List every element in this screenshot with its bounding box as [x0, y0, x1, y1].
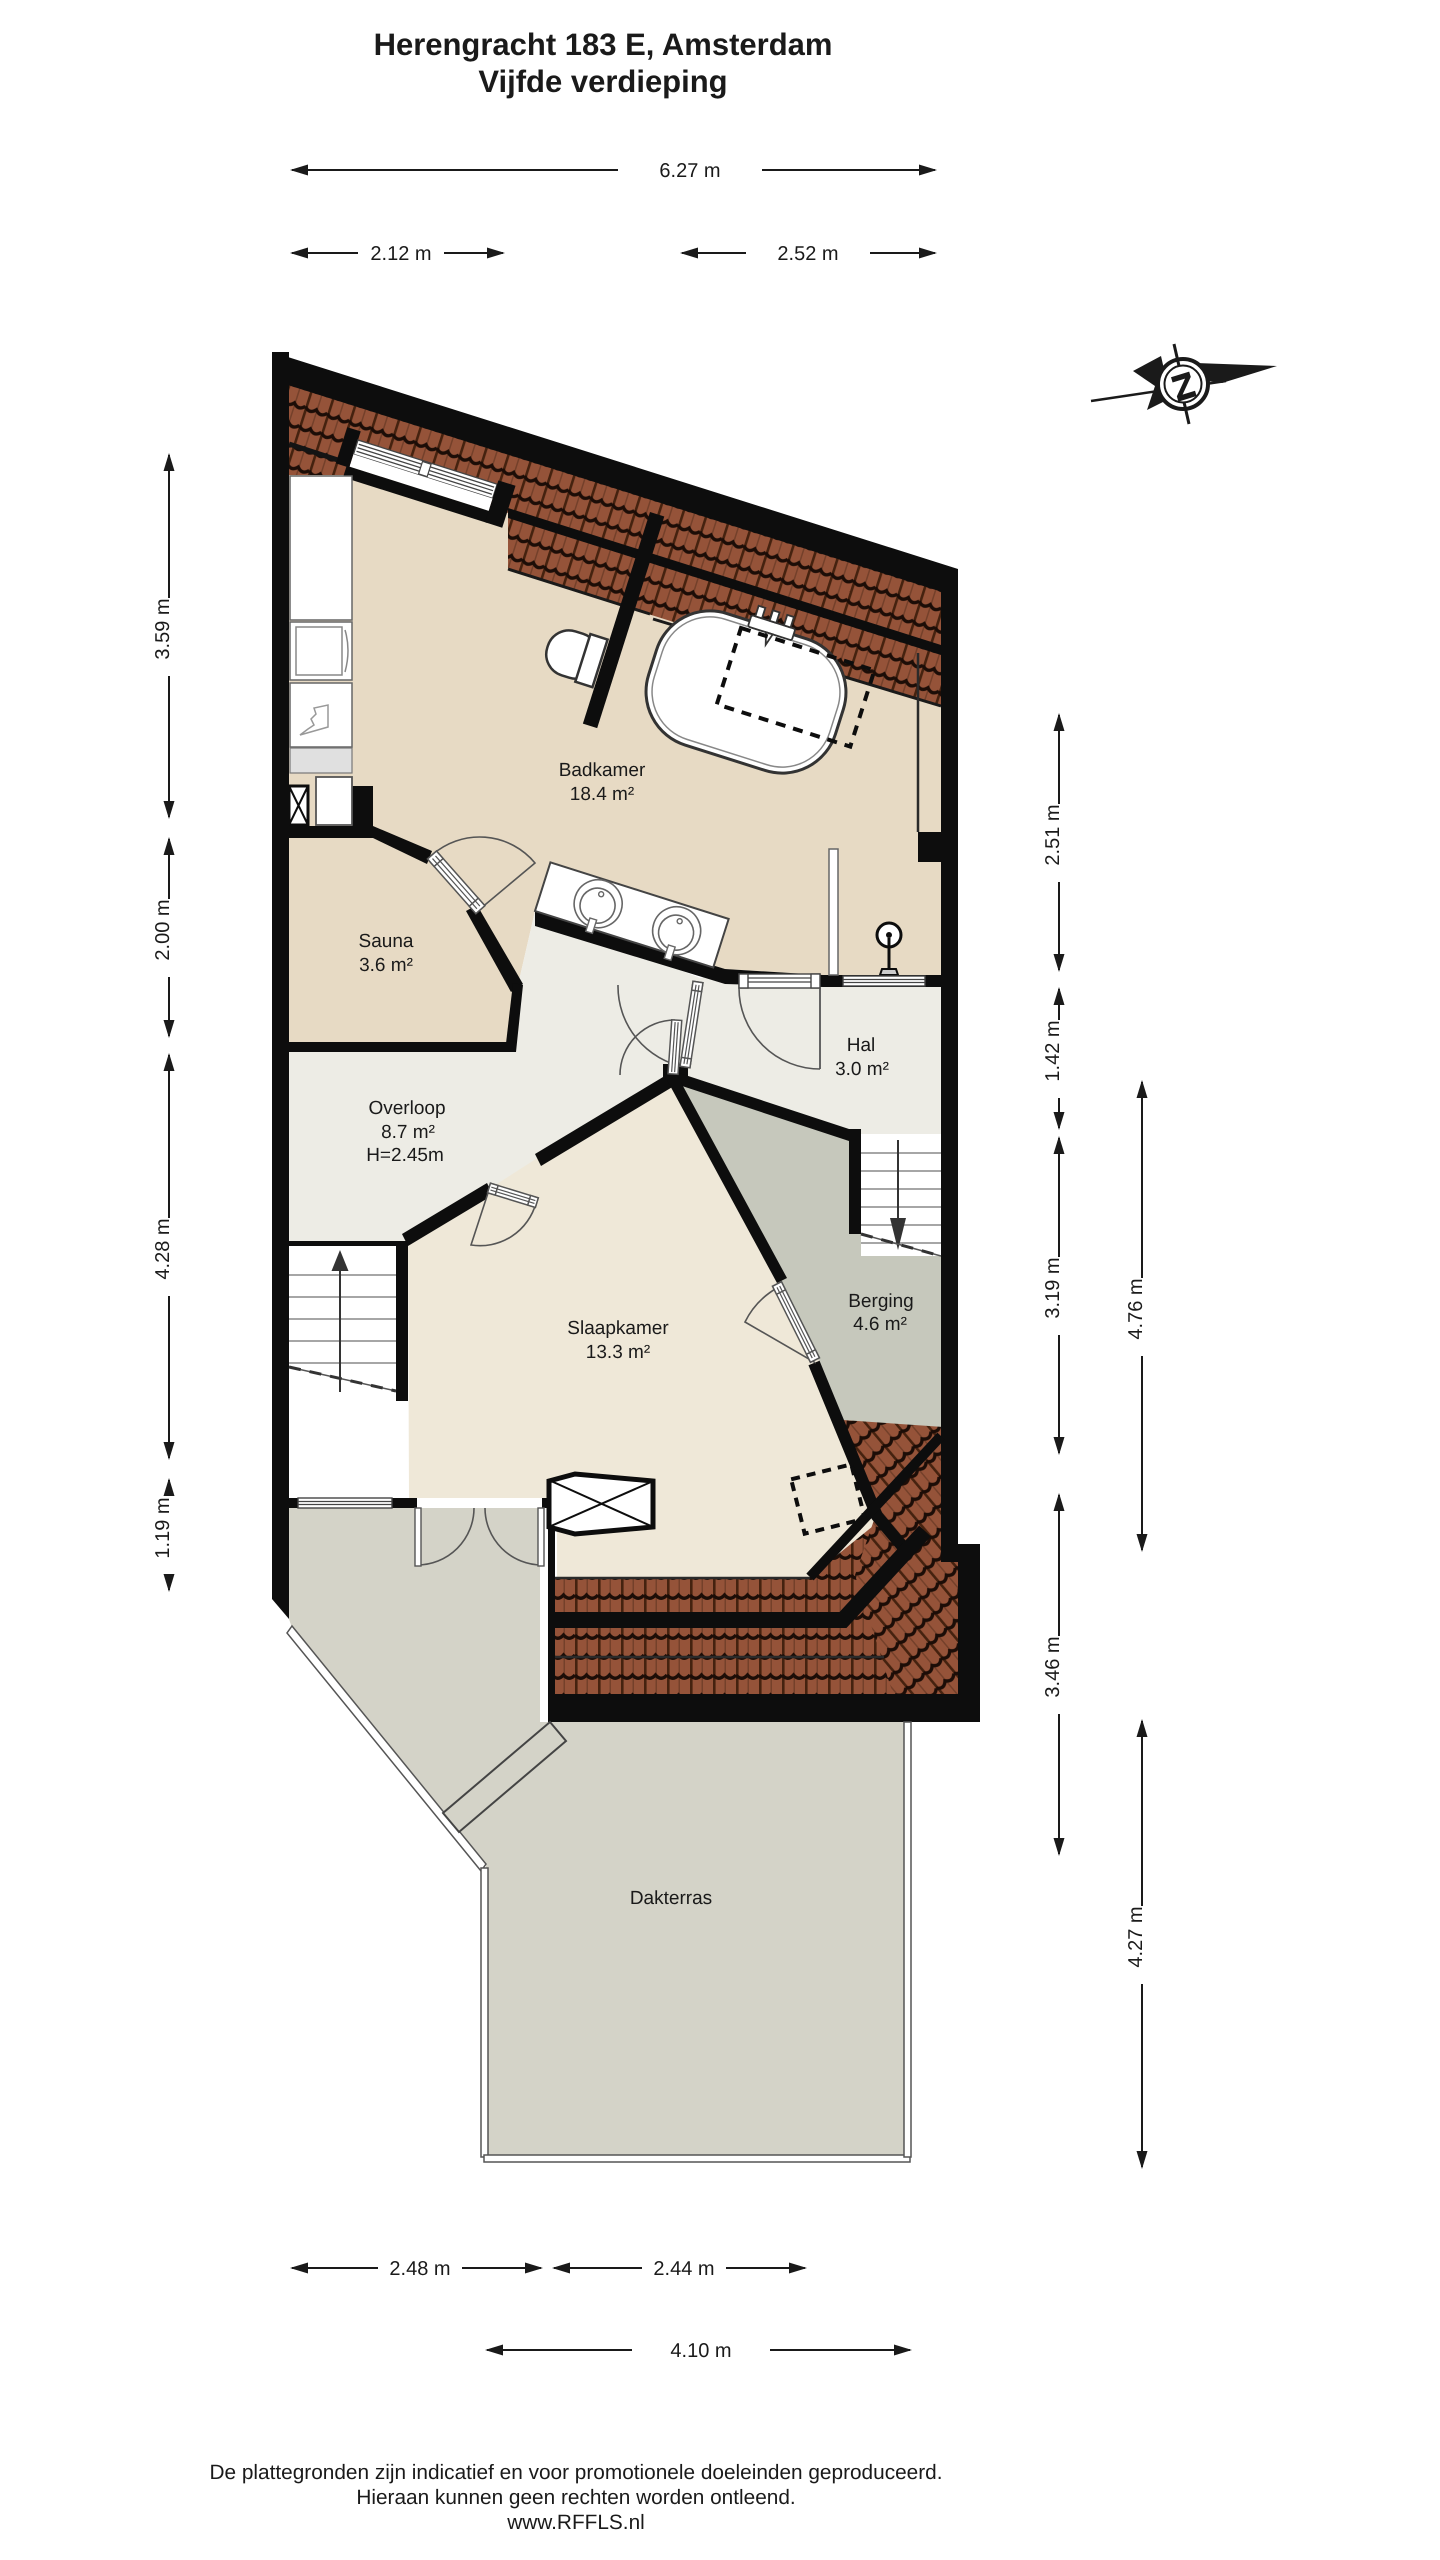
svg-text:4.10 m: 4.10 m: [670, 2340, 731, 2362]
svg-text:1.42 m: 1.42 m: [1042, 1020, 1064, 1081]
svg-text:18.4 m²: 18.4 m²: [570, 784, 634, 805]
svg-text:H=2.45m: H=2.45m: [366, 1145, 444, 1166]
svg-text:3.59 m: 3.59 m: [152, 598, 174, 659]
svg-text:2.12 m: 2.12 m: [370, 243, 431, 265]
svg-text:Badkamer: Badkamer: [559, 760, 646, 781]
svg-text:4.27 m: 4.27 m: [1125, 1906, 1147, 1967]
svg-text:De plattegronden zijn indicati: De plattegronden zijn indicatief en voor…: [209, 2461, 942, 2484]
svg-text:Berging: Berging: [848, 1291, 914, 1312]
svg-text:Vijfde verdieping: Vijfde verdieping: [478, 64, 727, 99]
svg-text:2.44 m: 2.44 m: [653, 2258, 714, 2280]
svg-text:1.19 m: 1.19 m: [152, 1497, 174, 1558]
svg-text:Dakterras: Dakterras: [630, 1888, 712, 1909]
svg-text:6.27 m: 6.27 m: [659, 160, 720, 182]
svg-text:2.51 m: 2.51 m: [1042, 804, 1064, 865]
svg-text:Sauna: Sauna: [359, 931, 414, 952]
svg-text:3.0 m²: 3.0 m²: [835, 1059, 889, 1080]
svg-text:4.28 m: 4.28 m: [152, 1218, 174, 1279]
svg-text:4.6 m²: 4.6 m²: [853, 1314, 907, 1335]
svg-text:2.52 m: 2.52 m: [777, 243, 838, 265]
svg-text:2.48 m: 2.48 m: [389, 2258, 450, 2280]
svg-text:Overloop: Overloop: [368, 1098, 445, 1119]
svg-text:Slaapkamer: Slaapkamer: [567, 1318, 669, 1339]
svg-text:3.6 m²: 3.6 m²: [359, 955, 413, 976]
svg-text:2.00 m: 2.00 m: [152, 899, 174, 960]
svg-text:4.76 m: 4.76 m: [1125, 1278, 1147, 1339]
svg-text:3.19 m: 3.19 m: [1042, 1257, 1064, 1318]
svg-text:Hieraan kunnen geen rechten wo: Hieraan kunnen geen rechten worden ontle…: [356, 2486, 795, 2509]
svg-text:8.7 m²: 8.7 m²: [381, 1122, 435, 1143]
svg-text:13.3 m²: 13.3 m²: [586, 1342, 650, 1363]
svg-text:Herengracht 183 E, Amsterdam: Herengracht 183 E, Amsterdam: [374, 27, 833, 62]
svg-text:3.46 m: 3.46 m: [1042, 1636, 1064, 1697]
svg-text:Hal: Hal: [847, 1035, 876, 1056]
svg-text:www.RFFLS.nl: www.RFFLS.nl: [506, 2511, 645, 2534]
